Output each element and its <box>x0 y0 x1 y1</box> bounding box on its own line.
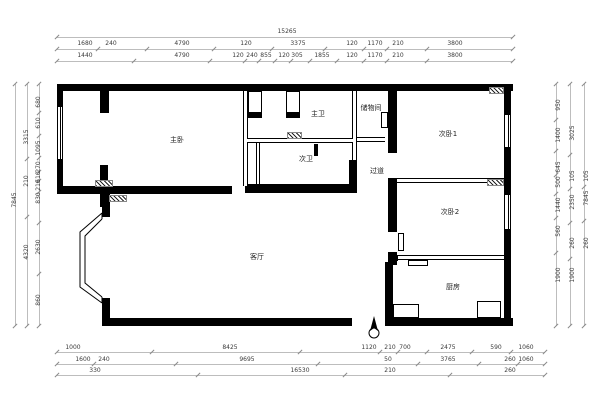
storage-door-leaf <box>381 112 388 128</box>
dimension-label: 4320 <box>24 244 30 259</box>
dimension-label: 645 <box>556 161 562 172</box>
wall-right-exterior-b <box>504 148 511 194</box>
wall-master-bottom-a <box>57 186 100 194</box>
dimension-line <box>57 364 545 365</box>
room-label: 厨房 <box>446 283 460 291</box>
dimension-tick <box>25 324 30 329</box>
dimension-label: 1060 <box>518 345 533 351</box>
wall-storage-bedroom1 <box>388 91 397 153</box>
dimension-tick <box>13 324 18 329</box>
dimension-label: 2630 <box>36 239 42 254</box>
dimension-label: 210 <box>36 179 42 190</box>
dimension-label: 1095 <box>36 140 42 155</box>
dimension-label: 120 <box>232 53 243 59</box>
dimension-label: 330 <box>89 368 100 374</box>
dimension-label: 240 <box>98 357 109 363</box>
dimension-label: 105 <box>570 170 576 181</box>
wall-bedroom2-left-a <box>388 178 397 232</box>
dimension-tick <box>582 324 587 329</box>
wall-right-exterior-a <box>504 84 511 114</box>
dimension-label: 1440 <box>77 53 92 59</box>
dimension-tick <box>554 324 559 329</box>
dimension-label: 3025 <box>570 125 576 140</box>
dimension-label: 680 <box>36 96 42 107</box>
dimension-label: 210 <box>384 368 395 374</box>
door-marker-bath <box>288 133 301 138</box>
wall-living-bottom <box>102 318 352 326</box>
dimension-label: 1170 <box>367 41 382 47</box>
dimension-label: 830 <box>36 192 42 203</box>
dimension-label: 7845 <box>12 192 18 207</box>
dimension-label: 1060 <box>518 357 533 363</box>
dimension-label: 50 <box>384 357 392 363</box>
dimension-label: 1170 <box>367 53 382 59</box>
dimension-label: 610 <box>36 117 42 128</box>
wall-kitchen-bottom <box>385 318 513 326</box>
dimension-label: 120 <box>278 53 289 59</box>
bay-window <box>80 213 102 303</box>
window-kitchen-south-2 <box>477 301 501 318</box>
dimension-tick <box>37 324 42 329</box>
door-marker-master-2 <box>110 196 126 201</box>
wall-left-exterior-a <box>57 84 63 106</box>
dimension-label: 210 <box>24 175 30 186</box>
dimension-label: 210 <box>392 53 403 59</box>
window-bedroom1-right <box>504 114 511 148</box>
dimension-tick <box>543 362 548 367</box>
partition-bath-storage <box>352 91 357 160</box>
dimension-label: 210 <box>384 345 395 351</box>
lintel-marker-bedroom1 <box>490 88 503 93</box>
dimension-label: 560 <box>556 225 562 236</box>
wall-right-exterior-c <box>504 230 511 326</box>
room-label: 储物间 <box>361 104 382 112</box>
shower-screen <box>256 143 260 184</box>
dimension-line <box>57 37 513 38</box>
dimension-label: 8425 <box>222 345 237 351</box>
dimension-label: 2475 <box>440 345 455 351</box>
room-label: 次卧2 <box>441 208 459 216</box>
window-kitchen-south-1 <box>393 304 419 318</box>
kitchen-door-leaf <box>408 260 428 266</box>
wall-master-stub-top <box>100 84 109 113</box>
dimension-label: 950 <box>556 99 562 110</box>
dimension-label: 500 <box>556 176 562 187</box>
floor-plan-canvas: 主卧主卫次卫储物间次卧1过道次卧2客厅厨房1526516802404790120… <box>0 0 600 400</box>
dimension-tick <box>511 35 516 40</box>
wall-kitchen-left <box>385 262 393 320</box>
dimension-label: 855 <box>260 53 271 59</box>
dimension-label: 1600 <box>75 357 90 363</box>
dimension-label: 240 <box>246 53 257 59</box>
dimension-label: 2350 <box>570 194 576 209</box>
partition-bath-divider <box>247 138 353 143</box>
dimension-tick <box>543 350 548 355</box>
bath-fixture-1-cap <box>248 112 262 118</box>
dimension-label: 120 <box>240 41 251 47</box>
dimension-label: 1900 <box>570 267 576 282</box>
bath-fixture-2-cap <box>286 112 300 118</box>
wall-bath-right-stub <box>349 160 357 186</box>
dimension-label: 1440 <box>556 197 562 212</box>
dimension-line <box>57 61 513 62</box>
north-arrow-icon <box>369 316 379 338</box>
dimension-label: 4790 <box>174 41 189 47</box>
wall-living-left-a <box>102 194 110 217</box>
room-label: 主卧 <box>170 136 184 144</box>
dimension-label: 700 <box>399 345 410 351</box>
dimension-label: 1000 <box>65 345 80 351</box>
dimension-label: 15265 <box>277 29 296 35</box>
dimension-label: 260 <box>584 237 590 248</box>
wall-top-exterior <box>57 84 513 91</box>
bedroom2-door-leaf <box>398 233 404 251</box>
dimension-label: 3375 <box>290 41 305 47</box>
dimension-label: 305 <box>291 53 302 59</box>
dimension-label: 260 <box>504 357 515 363</box>
dimension-label: 590 <box>490 345 501 351</box>
dimension-line <box>57 49 513 50</box>
dimension-tick <box>568 324 573 329</box>
dimension-label: 1900 <box>556 267 562 282</box>
dimension-line <box>27 84 28 326</box>
dimension-label: 1680 <box>77 41 92 47</box>
wall-bath-bottom <box>245 184 357 193</box>
dimension-label: 210 <box>392 41 403 47</box>
dimension-label: 1400 <box>556 127 562 142</box>
dimension-label: 860 <box>36 294 42 305</box>
dimension-label: 260 <box>504 368 515 374</box>
dimension-label: 120 <box>346 53 357 59</box>
dimension-label: 1855 <box>314 53 329 59</box>
dimension-label: 240 <box>105 41 116 47</box>
dimension-label: 4790 <box>174 53 189 59</box>
window-bedroom2-right <box>504 194 511 230</box>
room-label: 过道 <box>370 167 384 175</box>
dimension-tick <box>511 47 516 52</box>
dimension-label: 260 <box>570 237 576 248</box>
wall-kitchen-top-stub <box>388 255 398 261</box>
dimension-label: 7845 <box>584 190 590 205</box>
dimension-label: 3800 <box>447 53 462 59</box>
storage-shelf <box>357 137 385 142</box>
dimension-label: 9695 <box>239 357 254 363</box>
room-label: 次卫 <box>299 155 313 163</box>
dimension-label: 16530 <box>290 368 309 374</box>
dimension-label: 105 <box>584 170 590 181</box>
door-marker-master-1 <box>96 181 112 186</box>
dimension-label: 3315 <box>24 129 30 144</box>
dimension-label: 3765 <box>440 357 455 363</box>
bath2-door-tick <box>314 144 318 156</box>
dimension-label: 120 <box>346 41 357 47</box>
window-master-left <box>57 106 63 160</box>
dimension-line <box>57 375 545 376</box>
dimension-tick <box>543 373 548 378</box>
room-label: 主卫 <box>311 110 325 118</box>
wall-master-bottom-b <box>108 186 232 194</box>
dimension-tick <box>511 59 516 64</box>
room-label: 客厅 <box>250 253 264 261</box>
dimension-label: 3800 <box>447 41 462 47</box>
dimension-label: 1120 <box>361 345 376 351</box>
lintel-marker-bedroom2 <box>488 180 503 185</box>
room-label: 次卧1 <box>439 130 457 138</box>
